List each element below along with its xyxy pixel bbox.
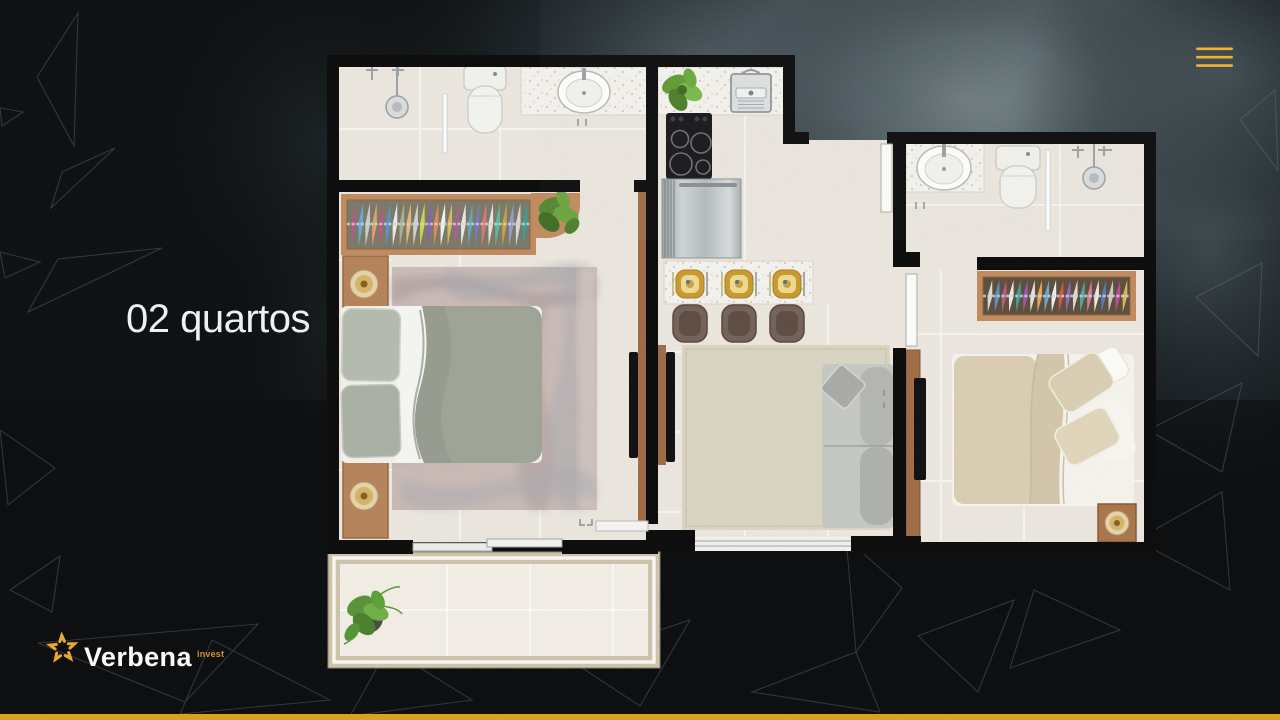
svg-text:02 quartos: 02 quartos (126, 297, 310, 341)
svg-text:Verbena: Verbena (84, 642, 192, 672)
svg-text:invest: invest (197, 649, 224, 659)
